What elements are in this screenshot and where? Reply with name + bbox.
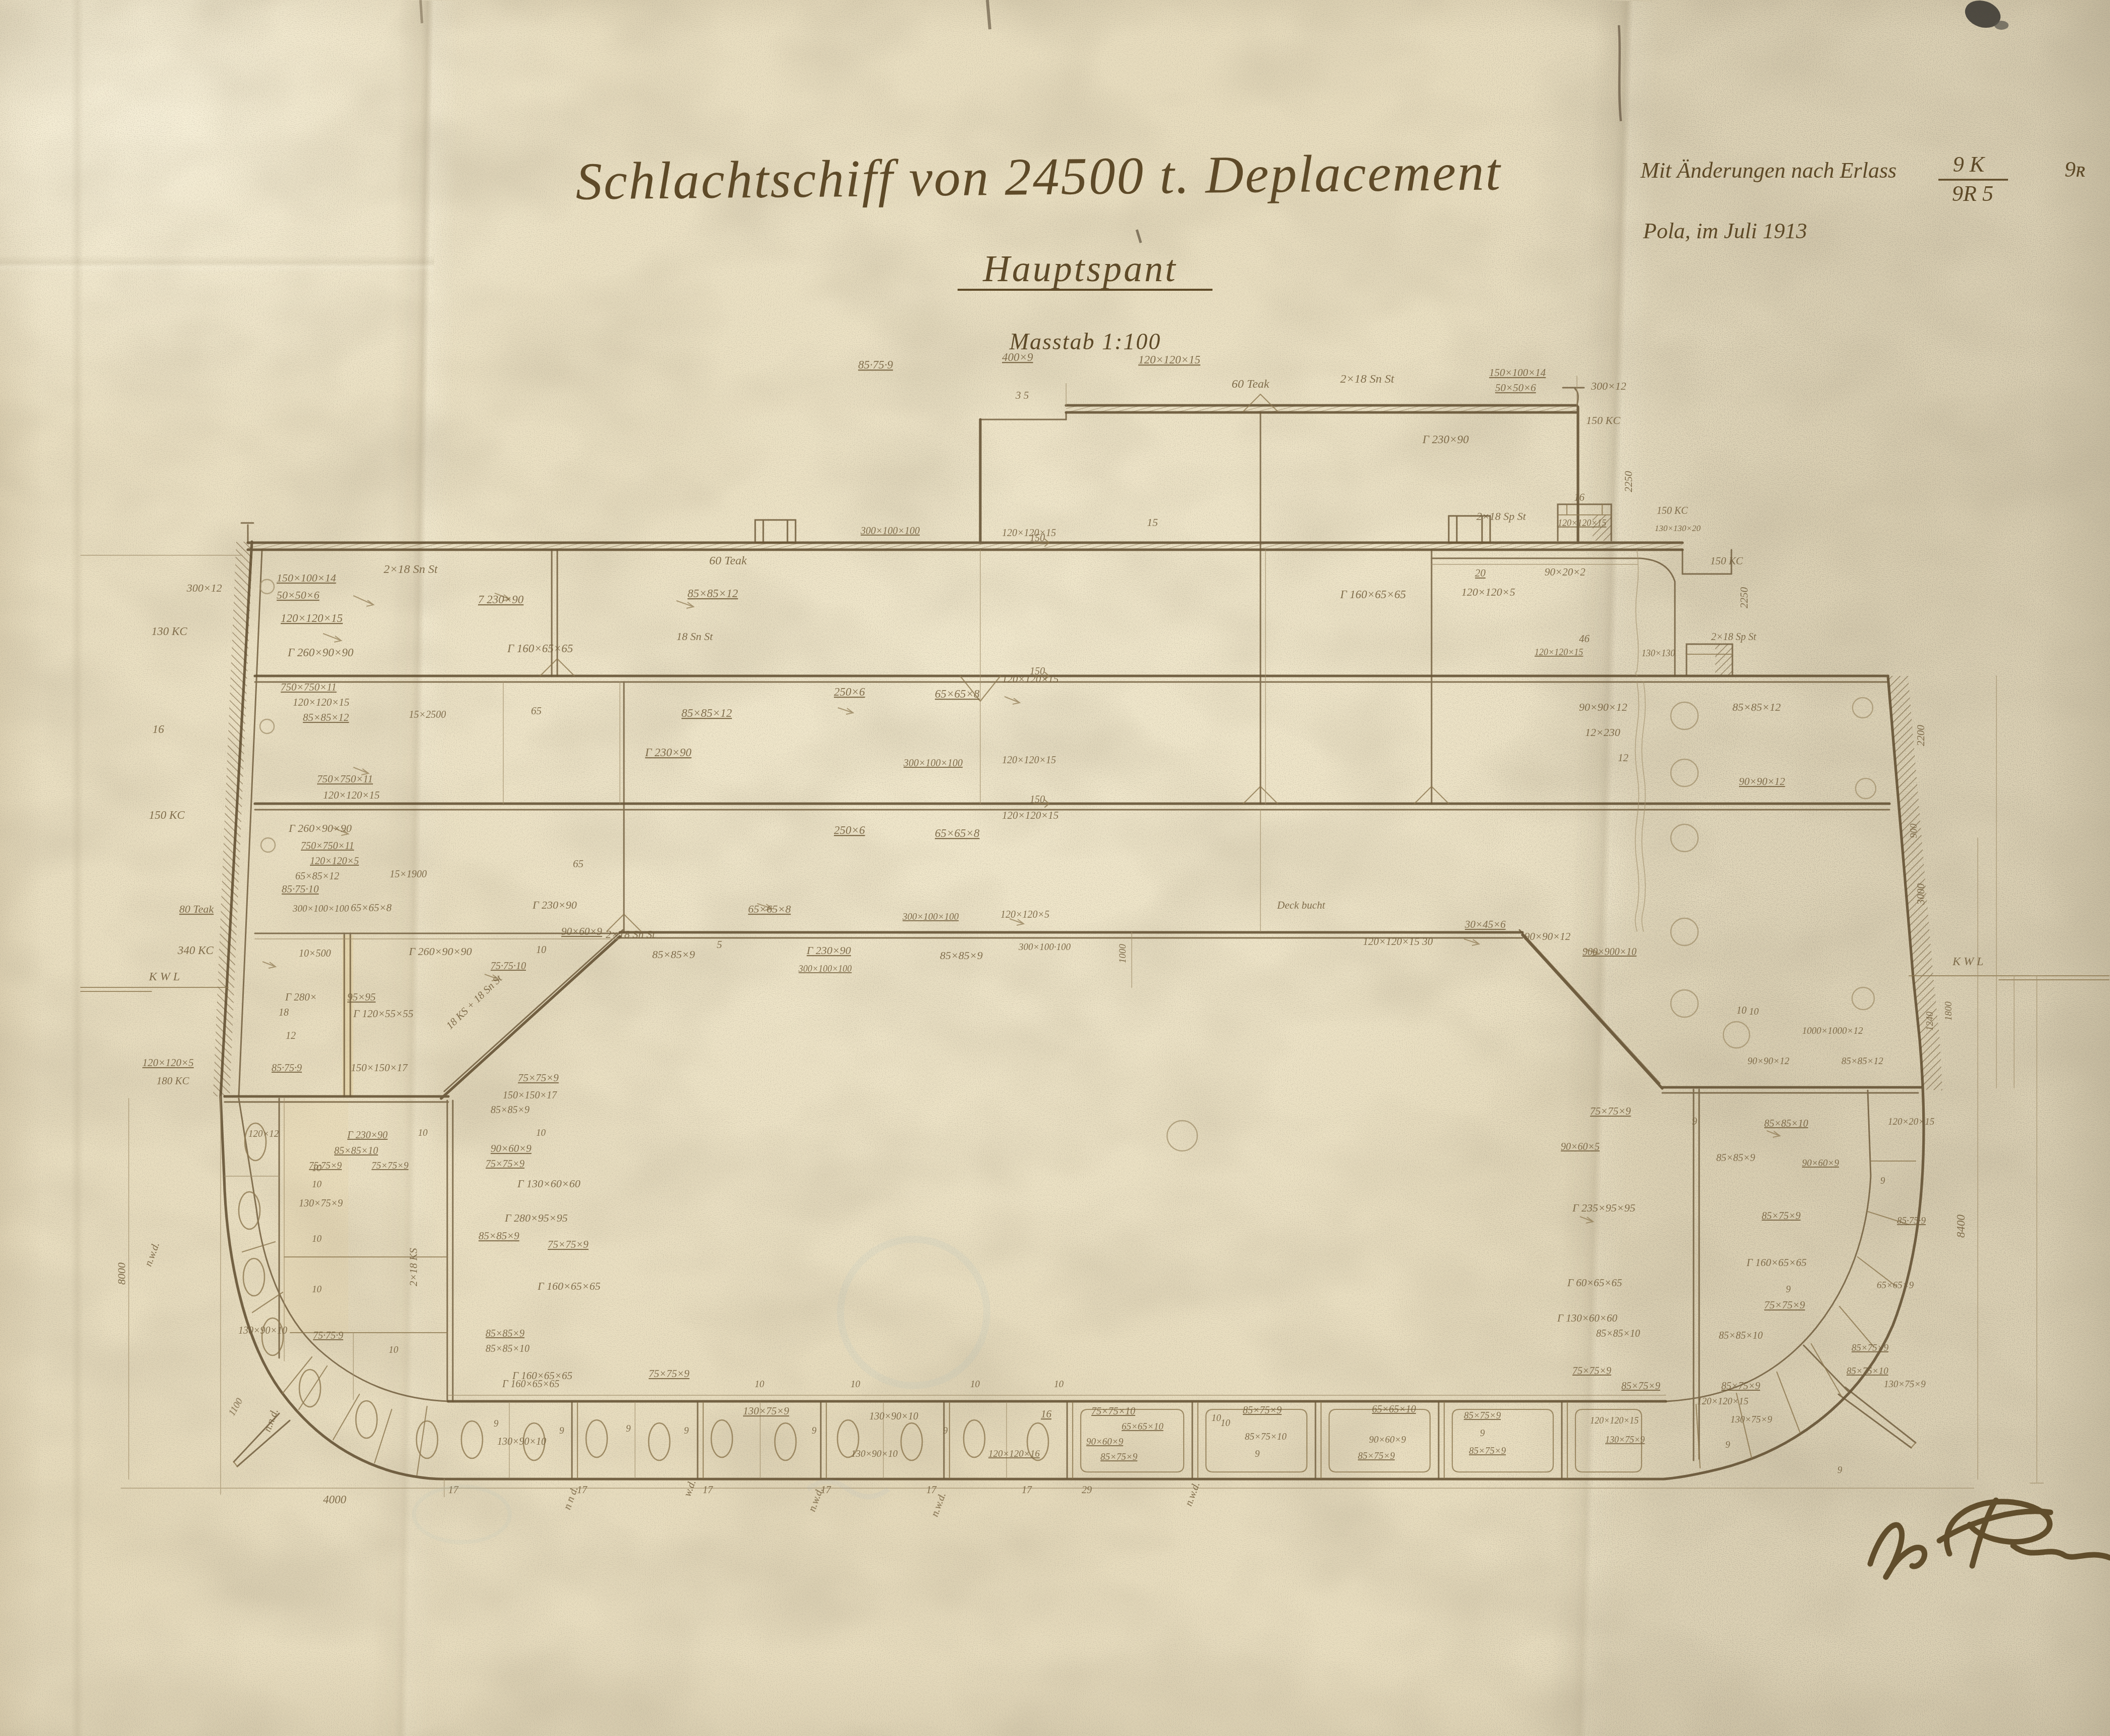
svg-text:9: 9 (1255, 1448, 1260, 1459)
svg-text:90×60×9: 90×60×9 (491, 1142, 532, 1154)
svg-text:75×75×9: 75×75×9 (372, 1160, 409, 1171)
svg-text:130×75×9: 130×75×9 (1605, 1435, 1645, 1445)
svg-text:Γ 230×90: Γ 230×90 (645, 746, 692, 759)
svg-text:85×75×10: 85×75×10 (1245, 1431, 1287, 1442)
svg-text:9 K: 9 K (1953, 152, 1986, 177)
svg-text:85·75·10: 85·75·10 (282, 883, 319, 895)
svg-text:8000: 8000 (115, 1262, 128, 1285)
svg-text:120×120×15: 120×120×15 (1002, 809, 1059, 821)
svg-text:75×75×9: 75×75×9 (518, 1072, 559, 1084)
svg-text:85·75·9: 85·75·9 (272, 1062, 302, 1073)
svg-text:85×85×10: 85×85×10 (1719, 1330, 1763, 1341)
svg-text:85×85×12: 85×85×12 (1732, 701, 1781, 713)
svg-text:65×65×8: 65×65×8 (351, 902, 392, 914)
svg-text:9: 9 (684, 1425, 689, 1436)
svg-text:Γ 130×60×60: Γ 130×60×60 (517, 1177, 581, 1190)
svg-text:10: 10 (1749, 1006, 1759, 1017)
svg-text:50×50×6: 50×50×6 (277, 589, 320, 601)
svg-text:180 KC: 180 KC (156, 1075, 190, 1087)
svg-text:85×75×10: 85×75×10 (1847, 1365, 1888, 1376)
svg-text:3 5: 3 5 (1015, 389, 1029, 401)
svg-text:10: 10 (755, 1379, 765, 1389)
svg-text:750×750×11: 750×750×11 (301, 840, 354, 851)
svg-text:120×120×15: 120×120×15 (293, 696, 349, 708)
svg-text:90×60×9: 90×60×9 (1369, 1434, 1406, 1445)
svg-text:12: 12 (1618, 752, 1629, 764)
svg-text:Γ 60×65×65: Γ 60×65×65 (1567, 1277, 1622, 1289)
svg-text:250×6: 250×6 (834, 686, 865, 698)
svg-text:300×100×100: 300×100×100 (292, 903, 349, 914)
svg-text:16: 16 (1041, 1408, 1052, 1420)
svg-text:120×120×15: 120×120×15 (1535, 647, 1583, 657)
svg-text:K W L: K W L (148, 970, 180, 983)
svg-text:Γ 230×90: Γ 230×90 (347, 1129, 388, 1140)
svg-text:Γ 260×90×90: Γ 260×90×90 (288, 822, 352, 834)
svg-text:120×120×5: 120×120×5 (142, 1057, 194, 1069)
svg-text:75×75×9: 75×75×9 (649, 1367, 690, 1380)
svg-text:3000: 3000 (1915, 883, 1927, 906)
svg-text:Masstab 1:100: Masstab 1:100 (1009, 329, 1162, 354)
svg-text:130×75×9: 130×75×9 (1884, 1379, 1926, 1389)
svg-text:130×75×9: 130×75×9 (743, 1405, 789, 1417)
svg-text:17: 17 (1022, 1484, 1032, 1495)
svg-text:65: 65 (573, 858, 584, 870)
svg-text:10: 10 (418, 1127, 428, 1138)
svg-text:Γ 260×90×90: Γ 260×90×90 (408, 945, 472, 958)
svg-text:150×100×14: 150×100×14 (277, 571, 336, 584)
svg-text:85×85×12: 85×85×12 (1841, 1056, 1883, 1066)
svg-text:900: 900 (1908, 823, 1919, 838)
svg-text:10: 10 (851, 1379, 861, 1389)
svg-text:Schlachtschiff von 24500 t. De: Schlachtschiff von 24500 t. Deplacement (575, 142, 1502, 211)
svg-text:9: 9 (1880, 1175, 1885, 1186)
svg-text:85×85×9: 85×85×9 (491, 1104, 530, 1115)
svg-text:250×6: 250×6 (834, 824, 865, 836)
svg-text:150: 150 (1030, 665, 1045, 676)
svg-text:Hauptspant: Hauptspant (982, 248, 1177, 289)
svg-text:9: 9 (1837, 1464, 1842, 1475)
svg-text:10: 10 (389, 1344, 399, 1355)
svg-text:Γ 235×95×95: Γ 235×95×95 (1572, 1201, 1636, 1214)
svg-text:85×85×9: 85×85×9 (479, 1230, 519, 1242)
svg-text:2×18 Sp St: 2×18 Sp St (1711, 631, 1756, 643)
svg-text:85·75·9: 85·75·9 (1897, 1215, 1926, 1226)
svg-text:65×65×10: 65×65×10 (1372, 1403, 1416, 1414)
svg-text:300×12: 300×12 (186, 582, 222, 594)
svg-text:120×120×15: 120×120×15 (1558, 518, 1606, 528)
svg-text:85×85×9: 85×85×9 (652, 948, 695, 961)
svg-text:75×75×9: 75×75×9 (1764, 1299, 1805, 1311)
svg-text:1000: 1000 (1117, 944, 1128, 964)
svg-text:30×45×6: 30×45×6 (1464, 918, 1506, 930)
svg-text:130×75×9: 130×75×9 (299, 1197, 343, 1208)
svg-text:120×120×5: 120×120×5 (1000, 909, 1049, 920)
svg-text:5: 5 (717, 938, 722, 951)
svg-text:17: 17 (703, 1484, 713, 1495)
svg-text:8400: 8400 (1955, 1215, 1967, 1238)
svg-text:85×75×9: 85×75×9 (1762, 1210, 1801, 1221)
svg-text:Γ 130×60×60: Γ 130×60×60 (1557, 1312, 1618, 1324)
svg-text:130 KC: 130 KC (151, 625, 188, 638)
svg-text:85×85×9: 85×85×9 (940, 949, 983, 962)
svg-text:Mit Änderungen nach Erlass: Mit Änderungen nach Erlass (1640, 158, 1896, 183)
svg-text:150×100×14: 150×100×14 (1489, 366, 1546, 379)
svg-text:18 Sn St: 18 Sn St (676, 630, 713, 643)
svg-text:150 KC: 150 KC (149, 809, 185, 821)
svg-text:85×85×12: 85×85×12 (303, 711, 349, 723)
svg-text:46: 46 (1579, 633, 1590, 645)
svg-text:Γ 260×90×90: Γ 260×90×90 (287, 646, 354, 659)
svg-text:Γ 120×55×55: Γ 120×55×55 (353, 1008, 413, 1020)
svg-text:150: 150 (1030, 532, 1045, 543)
svg-text:85×75×9: 85×75×9 (1621, 1380, 1660, 1391)
svg-text:130×130: 130×130 (1642, 648, 1675, 658)
svg-text:9: 9 (1480, 1428, 1485, 1438)
svg-text:10×500: 10×500 (299, 948, 331, 959)
svg-text:60 Teak: 60 Teak (709, 554, 747, 567)
svg-text:Γ 160×65×65: Γ 160×65×65 (502, 1378, 559, 1389)
svg-text:2×18 KS: 2×18 KS (407, 1248, 419, 1286)
svg-text:10: 10 (312, 1284, 322, 1294)
svg-text:K W L: K W L (1952, 955, 1983, 968)
svg-text:85×85×12: 85×85×12 (688, 587, 738, 600)
svg-text:9ʀ: 9ʀ (2065, 157, 2086, 182)
svg-text:2250: 2250 (1738, 587, 1750, 609)
svg-text:Deck bucht: Deck bucht (1277, 899, 1326, 911)
svg-text:85×75×9: 85×75×9 (1464, 1410, 1501, 1421)
svg-text:Γ 280×: Γ 280× (285, 991, 317, 1003)
svg-text:95×95: 95×95 (347, 991, 376, 1003)
svg-text:85×75×9: 85×75×9 (1358, 1450, 1395, 1461)
svg-text:150 KC: 150 KC (1657, 505, 1688, 516)
svg-text:9: 9 (494, 1418, 499, 1429)
svg-text:12×230: 12×230 (1585, 726, 1620, 739)
svg-text:85×75×9: 85×75×9 (1721, 1380, 1760, 1391)
svg-text:12: 12 (286, 1030, 296, 1041)
svg-text:10: 10 (1736, 1005, 1747, 1016)
svg-text:2250: 2250 (1622, 471, 1634, 493)
svg-text:16: 16 (1574, 491, 1585, 503)
svg-text:Γ 160×65×65: Γ 160×65×65 (1340, 588, 1406, 601)
svg-text:7 230×90: 7 230×90 (478, 593, 524, 606)
svg-text:120×120×15: 120×120×15 (1697, 1396, 1749, 1406)
svg-text:10: 10 (536, 1127, 546, 1138)
svg-text:15×1900: 15×1900 (390, 868, 427, 879)
svg-text:75·75·10: 75·75·10 (491, 960, 526, 971)
svg-text:130×90×10: 130×90×10 (869, 1410, 918, 1422)
svg-text:1800: 1800 (1943, 1002, 1954, 1021)
svg-text:120×120×15: 120×120×15 (1138, 353, 1200, 366)
svg-text:85×85×10: 85×85×10 (486, 1343, 530, 1354)
svg-text:2×18 Sn St: 2×18 Sn St (606, 928, 656, 940)
svg-text:80 Teak: 80 Teak (179, 903, 214, 915)
svg-text:9: 9 (943, 1425, 948, 1436)
svg-text:130×90×10: 130×90×10 (238, 1325, 287, 1336)
svg-text:750×750×11: 750×750×11 (317, 773, 373, 785)
svg-text:Γ 230×90: Γ 230×90 (1422, 433, 1469, 446)
svg-text:1000×1000×12: 1000×1000×12 (1802, 1025, 1863, 1036)
svg-text:150 KC: 150 KC (1710, 555, 1744, 567)
svg-text:10: 10 (312, 1163, 322, 1173)
svg-text:20: 20 (1475, 567, 1486, 579)
svg-text:130×90×10: 130×90×10 (851, 1448, 898, 1459)
svg-text:340 KC: 340 KC (177, 944, 214, 957)
svg-text:Γ 230×90: Γ 230×90 (532, 899, 577, 911)
svg-text:15×2500: 15×2500 (409, 709, 446, 720)
svg-text:120×120×16: 120×120×16 (988, 1448, 1040, 1459)
svg-text:65×65×8: 65×65×8 (748, 903, 791, 915)
svg-text:Pola, im Juli 1913: Pola, im Juli 1913 (1643, 219, 1807, 243)
svg-text:65: 65 (531, 705, 542, 717)
svg-text:900×900×10: 900×900×10 (1582, 946, 1637, 957)
svg-text:50×50×6: 50×50×6 (1495, 382, 1536, 394)
svg-text:Γ 160×65×65: Γ 160×65×65 (1746, 1256, 1807, 1269)
svg-text:120×120×15: 120×120×15 (1590, 1415, 1639, 1426)
svg-text:29: 29 (1082, 1484, 1092, 1495)
svg-text:2200: 2200 (1915, 725, 1927, 747)
svg-text:90×20×2: 90×20×2 (1545, 566, 1586, 578)
svg-text:120×120×15: 120×120×15 (1002, 754, 1056, 765)
svg-text:65×65×8: 65×65×8 (935, 688, 980, 700)
svg-text:85·75·9: 85·75·9 (858, 358, 893, 371)
svg-text:90×90×12: 90×90×12 (1579, 701, 1627, 713)
svg-text:120×120×15: 120×120×15 (281, 612, 343, 624)
svg-text:300×100×100: 300×100×100 (903, 757, 963, 768)
svg-text:120×120×15: 120×120×15 (1002, 527, 1056, 538)
svg-text:750×750×11: 750×750×11 (281, 681, 337, 693)
svg-text:120×120×15: 120×120×15 (323, 789, 380, 801)
svg-text:75×75×9: 75×75×9 (1590, 1105, 1631, 1117)
svg-text:Γ 160×65×65: Γ 160×65×65 (507, 642, 573, 655)
svg-text:85×85×9: 85×85×9 (1716, 1152, 1755, 1163)
svg-text:120×120×5: 120×120×5 (310, 855, 359, 866)
svg-text:150×150×17: 150×150×17 (351, 1062, 408, 1074)
svg-text:150: 150 (1030, 794, 1045, 805)
svg-text:90×60×5: 90×60×5 (1561, 1141, 1600, 1152)
svg-text:9: 9 (1725, 1439, 1730, 1450)
svg-text:90×60×9: 90×60×9 (561, 925, 602, 937)
svg-text:120×120×5: 120×120×5 (1461, 586, 1515, 598)
svg-text:300×100×100: 300×100×100 (798, 964, 852, 974)
svg-text:Γ 280×95×95: Γ 280×95×95 (504, 1212, 568, 1224)
svg-text:75·75·9: 75·75·9 (313, 1330, 343, 1341)
svg-text:Γ 160×65×65: Γ 160×65×65 (537, 1280, 601, 1292)
svg-text:130×130×20: 130×130×20 (1655, 523, 1701, 533)
svg-text:85×85×10: 85×85×10 (1596, 1328, 1640, 1339)
svg-text:10: 10 (1221, 1417, 1231, 1428)
svg-text:90×90×12: 90×90×12 (1748, 1056, 1789, 1066)
svg-text:150×150×17: 150×150×17 (503, 1089, 557, 1100)
svg-text:10: 10 (970, 1379, 980, 1389)
svg-text:90×90×12: 90×90×12 (1739, 775, 1785, 787)
svg-text:9: 9 (1786, 1284, 1791, 1294)
svg-text:85×85×10: 85×85×10 (334, 1145, 378, 1156)
svg-text:10: 10 (1211, 1412, 1222, 1423)
svg-text:150 KC: 150 KC (1586, 414, 1620, 427)
svg-text:90×60×9: 90×60×9 (1802, 1158, 1839, 1168)
svg-text:300×12: 300×12 (1591, 380, 1626, 392)
svg-text:Γ 230×90: Γ 230×90 (806, 944, 851, 957)
svg-text:10: 10 (536, 944, 546, 955)
svg-text:90×90×12: 90×90×12 (1524, 930, 1571, 942)
svg-text:9: 9 (626, 1423, 631, 1434)
svg-text:15: 15 (1147, 516, 1158, 529)
svg-text:75×75×9: 75×75×9 (1572, 1365, 1611, 1376)
svg-text:75×75×9: 75×75×9 (548, 1238, 589, 1250)
svg-text:9: 9 (559, 1425, 564, 1436)
svg-text:65×65×10: 65×65×10 (1122, 1421, 1164, 1432)
svg-text:9: 9 (1692, 1116, 1697, 1127)
svg-text:85×85×10: 85×85×10 (1764, 1118, 1808, 1129)
svg-text:300×100·100: 300×100·100 (1018, 941, 1071, 952)
svg-text:120×12: 120×12 (248, 1128, 279, 1139)
svg-text:65×65×8: 65×65×8 (935, 827, 980, 839)
svg-text:85×85×9: 85×85×9 (486, 1328, 524, 1339)
svg-text:300×100×100: 300×100×100 (860, 525, 920, 536)
svg-text:4000: 4000 (323, 1493, 347, 1506)
svg-text:10: 10 (1054, 1379, 1064, 1389)
svg-text:2×18 Sn St: 2×18 Sn St (1340, 372, 1395, 385)
svg-text:1240: 1240 (1924, 1012, 1935, 1031)
svg-text:18: 18 (279, 1007, 289, 1018)
svg-text:85×75×9: 85×75×9 (1243, 1404, 1282, 1415)
svg-text:85×75×9: 85×75×9 (1100, 1451, 1138, 1462)
svg-text:16: 16 (152, 723, 165, 735)
svg-text:17: 17 (926, 1484, 937, 1495)
svg-text:85×85×12: 85×85×12 (681, 707, 732, 719)
svg-text:85×75×9: 85×75×9 (1852, 1342, 1889, 1353)
svg-text:10: 10 (312, 1179, 322, 1189)
svg-text:9: 9 (812, 1425, 817, 1436)
svg-text:9R 5: 9R 5 (1952, 181, 1993, 206)
svg-text:85×75×9: 85×75×9 (1469, 1445, 1506, 1456)
svg-text:65×65×9: 65×65×9 (1877, 1280, 1914, 1290)
svg-text:130×75×9: 130×75×9 (1730, 1414, 1772, 1425)
svg-text:65×85×12: 65×85×12 (295, 870, 339, 881)
svg-text:90×60×9: 90×60×9 (1086, 1436, 1124, 1447)
svg-text:120×120×15 30: 120×120×15 30 (1363, 935, 1433, 948)
svg-text:120×20×15: 120×20×15 (1888, 1116, 1934, 1127)
svg-text:75×75×10: 75×75×10 (1091, 1405, 1135, 1416)
svg-text:2×18 Sn St: 2×18 Sn St (384, 562, 438, 575)
svg-text:60 Teak: 60 Teak (1232, 377, 1270, 390)
svg-text:10: 10 (312, 1233, 322, 1244)
svg-text:75×75×9: 75×75×9 (486, 1158, 524, 1169)
svg-text:130×90×10: 130×90×10 (497, 1436, 546, 1447)
svg-text:300×100×100: 300×100×100 (902, 911, 959, 922)
